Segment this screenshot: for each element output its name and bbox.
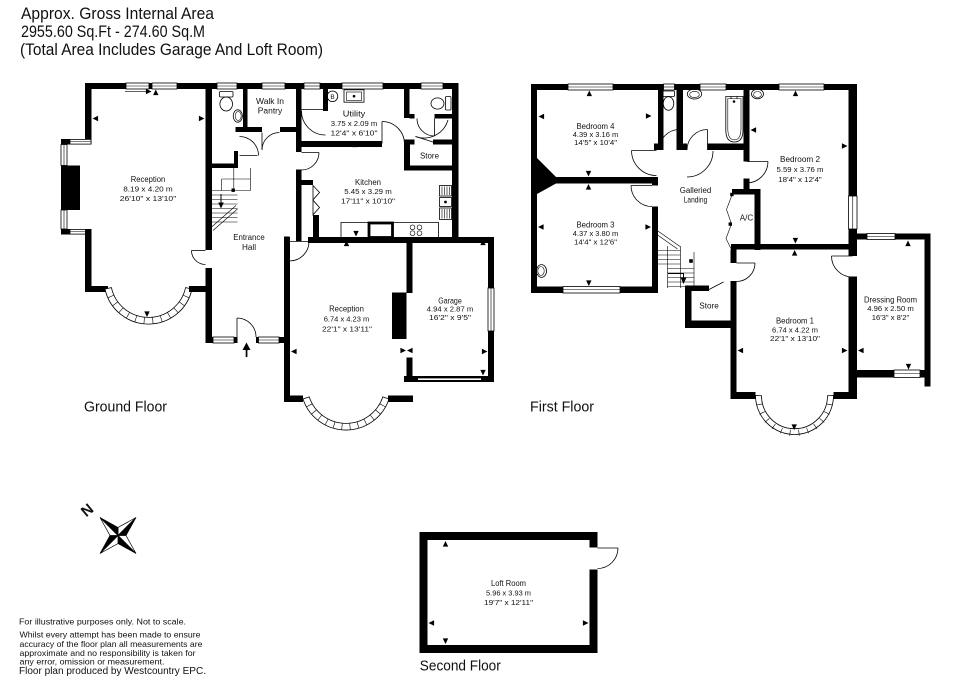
svg-text:26'10" x 13'10": 26'10" x 13'10" (120, 194, 177, 203)
svg-text:Kitchen: Kitchen (355, 178, 381, 187)
svg-text:17'11" x 10'10": 17'11" x 10'10" (341, 197, 395, 206)
svg-text:16'2" x 9'5": 16'2" x 9'5" (429, 313, 471, 322)
svg-text:Walk In: Walk In (256, 97, 284, 106)
svg-text:5.96 x 3.93 m: 5.96 x 3.93 m (486, 589, 531, 598)
svg-text:Loft Room: Loft Room (491, 579, 526, 588)
svg-text:Ground Floor: Ground Floor (84, 400, 167, 416)
svg-text:22'1" x 13'11": 22'1" x 13'11" (322, 325, 372, 334)
svg-text:6.74 x 4.23 m: 6.74 x 4.23 m (324, 315, 370, 324)
svg-text:Entrance: Entrance (233, 233, 265, 242)
svg-text:5.59 x 3.76 m: 5.59 x 3.76 m (777, 165, 824, 174)
svg-text:4.96 x 2.50 m: 4.96 x 2.50 m (867, 304, 914, 313)
svg-text:Floor plan produced by Westcou: Floor plan produced by Westcountry EPC. (19, 666, 206, 677)
svg-text:Landing: Landing (684, 196, 708, 205)
svg-text:Store: Store (699, 302, 719, 311)
svg-text:5.45 x 3.29 m: 5.45 x 3.29 m (344, 187, 392, 196)
svg-text:A/C: A/C (740, 214, 754, 223)
svg-text:19'7" x 12'11": 19'7" x 12'11" (484, 598, 533, 607)
svg-text:14'5" x 10'4": 14'5" x 10'4" (574, 138, 617, 147)
svg-text:Utility: Utility (343, 110, 366, 119)
svg-text:Hall: Hall (242, 243, 256, 252)
svg-text:For illustrative purposes only: For illustrative purposes only. Not to s… (19, 617, 186, 627)
svg-text:(Total Area Includes Garage An: (Total Area Includes Garage And Loft Roo… (20, 41, 323, 59)
svg-text:14'4" x 12'6": 14'4" x 12'6" (574, 238, 617, 247)
svg-text:18'4" x 12'4": 18'4" x 12'4" (778, 175, 822, 184)
svg-text:Pantry: Pantry (258, 107, 283, 116)
svg-text:8.19 x 4.20 m: 8.19 x 4.20 m (123, 185, 173, 194)
svg-text:Bedroom 1: Bedroom 1 (776, 317, 815, 326)
svg-text:First Floor: First Floor (530, 400, 594, 416)
svg-text:12'4" x 6'10": 12'4" x 6'10" (331, 129, 378, 138)
svg-text:2955.60 Sq.Ft - 274.60 Sq.M: 2955.60 Sq.Ft - 274.60 Sq.M (21, 23, 205, 41)
svg-text:Store: Store (420, 152, 440, 161)
svg-text:B: B (330, 94, 334, 101)
svg-text:Galleried: Galleried (680, 186, 712, 195)
svg-text:Bedroom 2: Bedroom 2 (780, 155, 821, 164)
svg-text:3.75 x 2.09 m: 3.75 x 2.09 m (331, 119, 378, 128)
svg-text:Approx. Gross Internal Area: Approx. Gross Internal Area (21, 5, 215, 23)
svg-text:Second Floor: Second Floor (420, 659, 501, 675)
svg-text:16'3" x 8'2": 16'3" x 8'2" (872, 313, 910, 322)
svg-text:Reception: Reception (329, 305, 364, 314)
svg-text:22'1" x 13'10": 22'1" x 13'10" (770, 334, 820, 343)
svg-text:Reception: Reception (131, 175, 166, 184)
